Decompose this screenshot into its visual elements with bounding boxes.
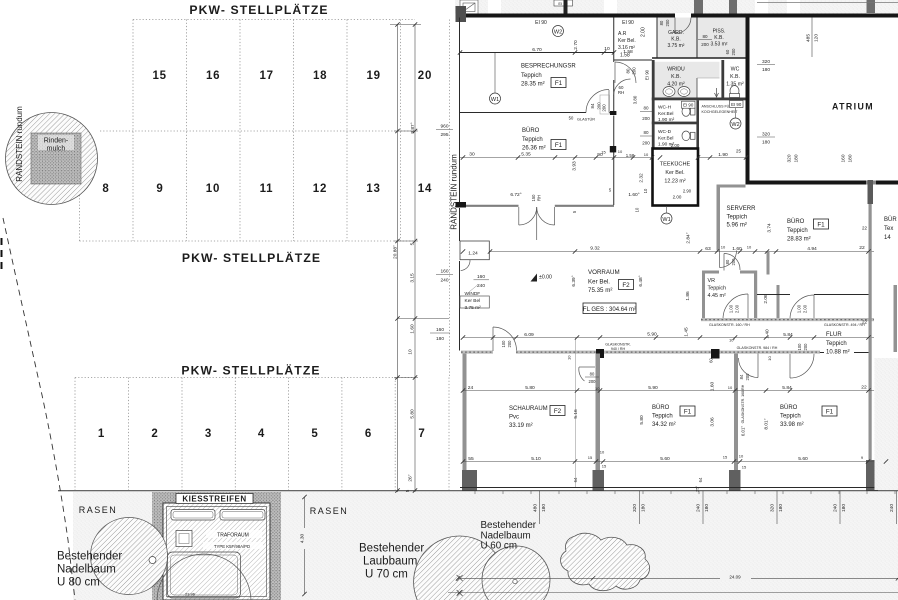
svg-text:64: 64 [698, 477, 703, 482]
svg-text:Teppich: Teppich [826, 341, 847, 347]
svg-text:Ker Bel.: Ker Bel. [618, 38, 636, 44]
svg-text:13: 13 [366, 183, 380, 195]
svg-text:12: 12 [313, 183, 327, 195]
svg-text:5.90: 5.90 [648, 385, 658, 391]
svg-text:22: 22 [859, 245, 865, 251]
svg-text:80: 80 [725, 259, 730, 264]
svg-text:BESPRECHUNGSR: BESPRECHUNGSR [521, 64, 576, 70]
svg-text:BÜRO: BÜRO [780, 404, 798, 411]
svg-text:F1: F1 [817, 222, 825, 229]
svg-text:80: 80 [643, 130, 649, 135]
svg-text:W2: W2 [554, 30, 562, 36]
svg-text:Nadelbaum: Nadelbaum [57, 564, 116, 576]
svg-text:Bestehender: Bestehender [359, 543, 424, 555]
svg-text:1.60°: 1.60° [628, 192, 639, 198]
svg-text:60: 60 [725, 49, 730, 54]
svg-text:200: 200 [642, 141, 650, 146]
svg-text:1.60: 1.60 [710, 382, 716, 392]
svg-text:2.90: 2.90 [683, 189, 692, 194]
svg-text:BÜRO: BÜRO [652, 404, 670, 411]
svg-text:PISS.: PISS. [713, 29, 726, 35]
svg-text:200: 200 [507, 340, 512, 348]
svg-text:1.60: 1.60 [410, 324, 416, 334]
svg-text:80: 80 [590, 372, 595, 377]
svg-text:WRIDU: WRIDU [667, 67, 685, 73]
svg-text:6.39°: 6.39° [571, 275, 577, 286]
svg-text:6.01°: 6.01° [741, 426, 746, 437]
svg-text:200: 200 [731, 48, 736, 56]
svg-text:200: 200 [589, 379, 597, 384]
svg-text:9: 9 [156, 183, 163, 195]
svg-text:5.84: 5.84 [783, 332, 793, 338]
svg-text:10: 10 [767, 356, 772, 361]
svg-text:55: 55 [468, 456, 474, 462]
svg-text:RH: RH [618, 90, 624, 95]
svg-text:240: 240 [889, 504, 895, 512]
svg-text:10: 10 [635, 207, 640, 212]
svg-text:180: 180 [704, 504, 710, 512]
svg-text:K.B.: K.B. [730, 74, 740, 80]
svg-text:2.00: 2.00 [673, 195, 682, 200]
svg-text:Ker.Bel: Ker.Bel [658, 111, 673, 117]
svg-text:485: 485 [806, 34, 812, 42]
svg-text:14: 14 [418, 183, 432, 195]
svg-text:Teppich: Teppich [708, 286, 727, 292]
svg-text:14: 14 [884, 235, 891, 241]
svg-text:15: 15 [723, 455, 728, 460]
svg-text:WC-D: WC-D [658, 129, 672, 135]
svg-text:Rinden-: Rinden- [44, 138, 69, 145]
svg-text:RASEN: RASEN [310, 506, 349, 516]
svg-text:320: 320 [787, 154, 793, 162]
svg-text:RH: RH [537, 195, 542, 201]
svg-text:9.87°: 9.87° [410, 122, 416, 133]
svg-text:±0.00: ±0.00 [539, 275, 552, 281]
svg-text:GLASKONSTR.: GLASKONSTR. [605, 343, 631, 347]
svg-text:26.36 m²: 26.36 m² [522, 146, 546, 152]
svg-text:FL GES : 304.64 m²: FL GES : 304.64 m² [583, 307, 636, 313]
svg-text:180: 180 [436, 336, 444, 342]
svg-text:64: 64 [573, 477, 578, 482]
svg-text:6.48°: 6.48° [638, 275, 644, 286]
svg-text:mulch: mulch [47, 146, 66, 153]
svg-text:5.80: 5.80 [410, 409, 416, 419]
svg-text:Teppich: Teppich [727, 215, 748, 221]
svg-text:6: 6 [365, 428, 372, 440]
svg-text:960: 960 [440, 124, 448, 130]
svg-text:17: 17 [259, 70, 273, 82]
svg-text:15: 15 [601, 150, 606, 155]
svg-text:180: 180 [641, 504, 647, 512]
svg-text:480: 480 [533, 504, 539, 512]
svg-text:F1: F1 [555, 142, 563, 149]
svg-text:TEEKÜCHE: TEEKÜCHE [660, 161, 691, 168]
svg-text:80: 80 [702, 34, 708, 39]
svg-text:8: 8 [102, 183, 109, 195]
svg-text:1.86: 1.86 [685, 291, 691, 301]
svg-text:24.09: 24.09 [729, 575, 741, 580]
svg-text:2.84°: 2.84° [686, 232, 692, 243]
svg-text:75.35 m²: 75.35 m² [588, 287, 612, 294]
svg-text:2.00: 2.00 [641, 27, 647, 37]
svg-text:180: 180 [762, 140, 770, 146]
svg-text:26°: 26° [408, 474, 414, 481]
svg-text:5.90: 5.90 [647, 332, 657, 338]
svg-text:80: 80 [643, 106, 649, 111]
svg-text:100: 100 [501, 340, 506, 348]
svg-text:10.88 m²: 10.88 m² [826, 350, 850, 356]
svg-text:3.53 m²: 3.53 m² [711, 42, 728, 48]
svg-text:1.24: 1.24 [468, 251, 478, 257]
svg-text:K.B.: K.B. [714, 35, 723, 41]
svg-text:GLASKONSTR. 160 / RH: GLASKONSTR. 160 / RH [709, 323, 750, 327]
svg-text:15: 15 [610, 149, 615, 154]
svg-text:3: 3 [205, 428, 212, 440]
svg-text:PKW- STELLPLÄTZE: PKW- STELLPLÄTZE [189, 2, 328, 17]
svg-text:240: 240 [696, 504, 702, 512]
svg-text:22: 22 [861, 385, 867, 391]
svg-text:80: 80 [626, 68, 631, 73]
svg-text:320: 320 [762, 59, 770, 65]
svg-text:240: 240 [833, 504, 839, 512]
svg-text:6.09: 6.09 [524, 332, 534, 338]
svg-text:80: 80 [659, 20, 664, 25]
svg-text:33.98 m²: 33.98 m² [780, 422, 804, 428]
svg-text:12.23 m²: 12.23 m² [664, 179, 685, 185]
svg-text:EI 90: EI 90 [731, 102, 742, 107]
svg-text:KIESSTREIFEN: KIESSTREIFEN [182, 495, 246, 504]
svg-text:3.93: 3.93 [572, 161, 578, 171]
svg-text:W2: W2 [731, 122, 739, 128]
svg-text:5: 5 [311, 428, 318, 440]
svg-text:19: 19 [366, 70, 380, 82]
svg-text:3.80: 3.80 [633, 95, 638, 104]
svg-text:Ker Bel.: Ker Bel. [665, 170, 684, 176]
svg-text:Ker.Bel: Ker.Bel [658, 135, 673, 141]
svg-text:BÜRO: BÜRO [522, 127, 540, 134]
svg-text:200: 200 [665, 19, 670, 27]
svg-text:7: 7 [418, 428, 425, 440]
svg-text:W1: W1 [491, 97, 499, 103]
svg-text:K.B.: K.B. [671, 37, 680, 43]
svg-text:WC-H: WC-H [658, 105, 672, 111]
svg-text:W1: W1 [662, 217, 670, 223]
svg-text:15: 15 [152, 70, 166, 82]
svg-text:200: 200 [632, 67, 637, 75]
svg-text:84: 84 [590, 103, 595, 108]
svg-text:10: 10 [643, 188, 648, 193]
svg-text:KOCHGELEGENHEIT: KOCHGELEGENHEIT [702, 110, 739, 114]
svg-text:1.90: 1.90 [718, 152, 728, 158]
svg-text:63: 63 [705, 246, 711, 252]
svg-text:5.10: 5.10 [531, 456, 541, 462]
svg-text:Ker Bel: Ker Bel [465, 298, 481, 304]
svg-text:200: 200 [731, 258, 736, 266]
svg-text:ATRIUM: ATRIUM [832, 102, 874, 112]
svg-text:3.75 m²: 3.75 m² [465, 305, 482, 311]
svg-text:160: 160 [841, 154, 847, 162]
svg-text:1.58: 1.58 [620, 53, 630, 59]
svg-text:11: 11 [260, 183, 274, 195]
svg-text:60: 60 [709, 358, 714, 363]
svg-text:BÜR: BÜR [884, 216, 897, 223]
svg-text:18: 18 [313, 70, 327, 82]
svg-text:GLASKONSTR. 168/RH: GLASKONSTR. 168/RH [741, 384, 745, 423]
svg-text:2.00: 2.00 [735, 304, 740, 313]
svg-text:Ker Bel.: Ker Bel. [588, 279, 610, 286]
svg-text:20.88°: 20.88° [393, 245, 399, 259]
svg-text:200: 200 [602, 104, 607, 112]
svg-text:TRAFORAUM: TRAFORAUM [217, 533, 249, 539]
svg-text:Bestehender: Bestehender [57, 551, 122, 563]
svg-text:3.16 m²: 3.16 m² [618, 45, 635, 51]
svg-text:K.B.: K.B. [671, 74, 681, 80]
svg-text:16: 16 [206, 70, 220, 82]
svg-text:5.16: 5.16 [573, 409, 579, 419]
svg-text:84: 84 [739, 374, 744, 379]
svg-text:1.90 m²: 1.90 m² [658, 117, 675, 123]
svg-text:10: 10 [600, 450, 605, 455]
svg-text:F1: F1 [555, 80, 563, 87]
svg-text:5.60: 5.60 [798, 456, 808, 462]
svg-text:15: 15 [602, 464, 607, 469]
svg-text:9.32: 9.32 [590, 246, 600, 252]
svg-text:15: 15 [742, 465, 747, 470]
svg-text:5.80: 5.80 [525, 385, 535, 391]
svg-text:Pvc: Pvc [509, 415, 519, 421]
svg-text:10: 10 [728, 385, 733, 390]
svg-text:8.01°: 8.01° [764, 418, 770, 429]
svg-text:34.32 m²: 34.32 m² [652, 422, 676, 428]
svg-text:SERVERR: SERVERR [727, 206, 757, 212]
svg-text:20: 20 [418, 70, 432, 82]
svg-text:F1: F1 [826, 409, 834, 416]
svg-text:940 / RH: 940 / RH [611, 347, 626, 351]
svg-text:WC: WC [731, 67, 740, 73]
svg-text:A.R: A.R [618, 31, 627, 37]
svg-text:28.35 m²: 28.35 m² [521, 82, 545, 88]
svg-text:GLASTÜR: GLASTÜR [577, 118, 595, 122]
svg-text:10: 10 [739, 454, 744, 459]
svg-text:4.45 m²: 4.45 m² [708, 293, 726, 299]
svg-text:EI 90: EI 90 [683, 103, 694, 108]
svg-text:160: 160 [477, 274, 485, 280]
svg-text:200: 200 [803, 343, 808, 351]
svg-text:BÜRO: BÜRO [787, 218, 805, 225]
svg-text:ANSCHLUSS FÜR: ANSCHLUSS FÜR [702, 105, 733, 109]
svg-text:30: 30 [469, 152, 475, 158]
svg-text:240: 240 [477, 283, 485, 289]
svg-text:RASEN: RASEN [79, 505, 118, 515]
svg-text:10: 10 [206, 183, 220, 195]
svg-text:4.94: 4.94 [807, 246, 817, 252]
svg-text:Teppich: Teppich [780, 414, 801, 420]
svg-text:180: 180 [848, 154, 854, 162]
svg-text:50: 50 [569, 116, 574, 121]
svg-text:6.72°: 6.72° [510, 192, 521, 198]
svg-text:2.70: 2.70 [573, 40, 579, 50]
svg-text:Laubbaum: Laubbaum [363, 556, 417, 568]
svg-text:28.83 m²: 28.83 m² [787, 237, 811, 243]
svg-text:320: 320 [762, 132, 770, 138]
svg-text:VR: VR [708, 278, 716, 284]
svg-text:1.45: 1.45 [684, 327, 690, 337]
svg-text:2: 2 [151, 428, 158, 440]
svg-text:GLASKONSTR. 494 / RH: GLASKONSTR. 494 / RH [824, 323, 865, 327]
svg-text:Teppich: Teppich [787, 228, 808, 234]
svg-text:10: 10 [618, 149, 623, 154]
svg-text:320: 320 [770, 504, 776, 512]
svg-text:160: 160 [440, 269, 448, 275]
svg-text:SCHAURAUM: SCHAURAUM [509, 406, 548, 412]
svg-text:Tex: Tex [884, 226, 893, 232]
svg-text:U 60 cm: U 60 cm [481, 541, 517, 552]
svg-text:GLASKONSTR. 984 / RH: GLASKONSTR. 984 / RH [737, 346, 778, 350]
svg-text:RANDSTEIN rundum: RANDSTEIN rundum [450, 154, 459, 230]
svg-text:10: 10 [644, 152, 649, 157]
svg-text:100: 100 [797, 343, 802, 351]
svg-text:295: 295 [440, 132, 448, 138]
svg-text:4.30: 4.30 [300, 534, 306, 544]
svg-text:F2: F2 [622, 282, 630, 289]
svg-text:120: 120 [814, 34, 820, 42]
svg-text:3.06: 3.06 [710, 417, 716, 427]
svg-text:3.75 m²: 3.75 m² [668, 43, 685, 49]
svg-text:F2: F2 [554, 408, 562, 415]
svg-text:24: 24 [468, 385, 474, 391]
svg-text:U 70 cm: U 70 cm [365, 569, 408, 581]
svg-text:GARD.: GARD. [668, 30, 684, 36]
svg-text:180: 180 [794, 154, 800, 162]
svg-text:2.32: 2.32 [639, 173, 645, 183]
svg-text:180: 180 [841, 504, 847, 512]
svg-text:PKW- STELLPLÄTZE: PKW- STELLPLÄTZE [182, 250, 321, 265]
svg-text:5.96 m²: 5.96 m² [727, 223, 747, 229]
svg-text:WINDF: WINDF [465, 291, 481, 297]
svg-text:10: 10 [408, 349, 414, 355]
svg-text:10: 10 [567, 355, 572, 360]
svg-text:3.15: 3.15 [410, 273, 416, 283]
svg-text:EI 90: EI 90 [622, 20, 634, 26]
svg-text:5.35: 5.35 [521, 152, 531, 158]
svg-text:Teppich: Teppich [521, 73, 542, 79]
svg-text:6.70: 6.70 [532, 47, 542, 53]
svg-text:FLUR: FLUR [826, 332, 842, 338]
svg-text:4: 4 [258, 428, 265, 440]
svg-text:RANDSTEIN rundum: RANDSTEIN rundum [15, 106, 24, 182]
svg-text:180: 180 [778, 504, 784, 512]
svg-text:150: 150 [531, 194, 536, 202]
svg-text:Teppich: Teppich [652, 414, 673, 420]
svg-text:2.00: 2.00 [671, 143, 680, 148]
svg-text:160: 160 [436, 327, 444, 333]
svg-text:200: 200 [642, 116, 650, 121]
svg-text:Teppich: Teppich [522, 137, 543, 143]
svg-text:5.80: 5.80 [639, 415, 645, 425]
svg-text:200: 200 [745, 373, 750, 381]
svg-text:F1: F1 [684, 409, 692, 416]
svg-text:VORRAUM: VORRAUM [588, 269, 620, 276]
svg-text:22: 22 [862, 320, 868, 325]
svg-text:320: 320 [632, 504, 638, 512]
svg-text:EI 90: EI 90 [535, 20, 547, 26]
svg-text:10: 10 [721, 245, 726, 250]
svg-text:10: 10 [747, 245, 752, 250]
svg-text:1.00: 1.00 [729, 304, 734, 313]
svg-text:EI 90: EI 90 [645, 69, 650, 80]
svg-text:180: 180 [541, 504, 547, 512]
svg-text:PKW- STELLPLÄTZE: PKW- STELLPLÄTZE [181, 363, 320, 378]
svg-text:33.19 m²: 33.19 m² [509, 423, 533, 429]
svg-text:5: 5 [410, 242, 416, 245]
svg-text:180: 180 [762, 67, 770, 73]
svg-text:TYPE K5F/98A/PD: TYPE K5F/98A/PD [214, 544, 250, 549]
svg-text:22: 22 [862, 226, 868, 231]
svg-text:U 80 cm: U 80 cm [57, 577, 100, 589]
svg-text:2.00: 2.00 [803, 304, 808, 313]
svg-text:1.00: 1.00 [797, 304, 802, 313]
svg-text:2.06: 2.06 [763, 294, 769, 304]
svg-text:23.96: 23.96 [185, 592, 196, 597]
svg-text:25: 25 [736, 149, 741, 154]
svg-text:5.60: 5.60 [660, 456, 670, 462]
svg-text:1: 1 [98, 428, 105, 440]
svg-text:240: 240 [440, 278, 448, 284]
svg-text:200: 200 [701, 42, 709, 47]
svg-text:15: 15 [588, 455, 593, 460]
svg-text:3.74: 3.74 [767, 223, 773, 233]
